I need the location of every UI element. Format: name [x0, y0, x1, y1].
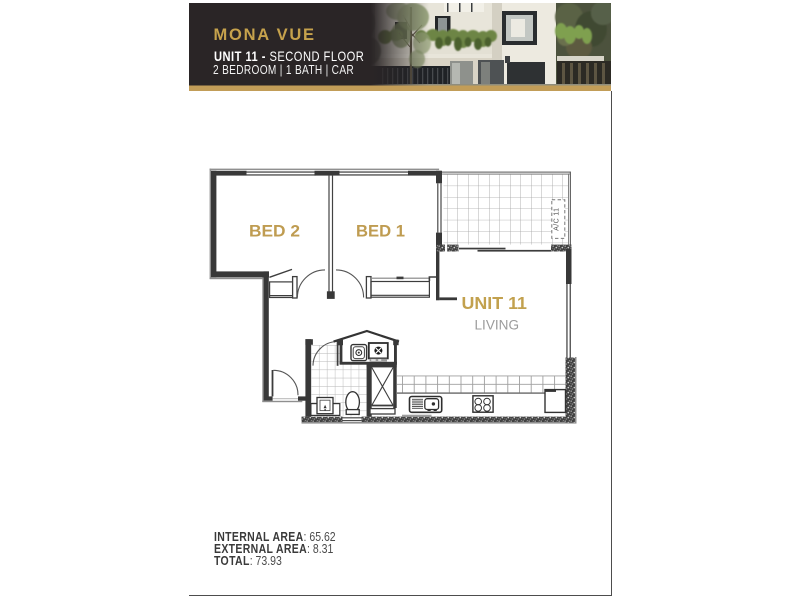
svg-text:BED 2: BED 2 — [249, 221, 300, 240]
svg-text:LIVING: LIVING — [475, 318, 520, 333]
svg-text:A/C 11: A/C 11 — [553, 208, 560, 231]
svg-text:UNIT 11: UNIT 11 — [462, 293, 528, 313]
svg-text:BED 1: BED 1 — [356, 221, 405, 240]
